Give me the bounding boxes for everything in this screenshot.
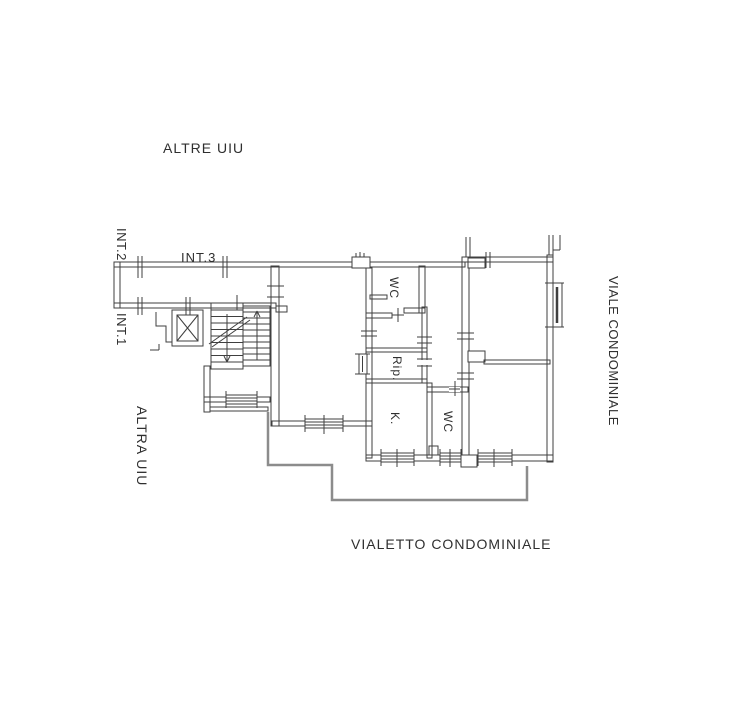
stair-landing — [204, 366, 270, 412]
label-altra-uiu: ALTRA UIU — [134, 406, 150, 486]
room-label-wc-top: WC — [387, 277, 401, 299]
landing-window — [226, 395, 257, 404]
apartment-walls — [267, 235, 564, 467]
corridor-walls — [114, 252, 465, 315]
stair-break-line — [209, 317, 247, 344]
label-int1: INT.1 — [114, 313, 129, 346]
floor-plan-page: ALTRE UIU INT.2 INT.3 INT.1 ALTRA UIU VI… — [0, 0, 729, 720]
doorstep — [461, 455, 477, 467]
room-label-rip: Rip. — [390, 356, 404, 381]
label-vialetto-condominiale: VIALETTO CONDOMINIALE — [351, 536, 551, 552]
label-altre-uiu: ALTRE UIU — [163, 140, 244, 156]
bedroom-window — [478, 453, 512, 462]
room-label-wc-bottom: WC — [441, 411, 455, 433]
duct-notch — [150, 312, 172, 350]
room-label-k: K. — [388, 412, 402, 425]
label-viale-condominiale: VIALE CONDOMINIALE — [606, 276, 621, 426]
label-int3: INT.3 — [181, 250, 216, 265]
label-int2: INT.2 — [114, 228, 129, 261]
staircase — [209, 303, 270, 369]
bedroom-door — [468, 351, 485, 362]
fixture — [429, 446, 438, 455]
